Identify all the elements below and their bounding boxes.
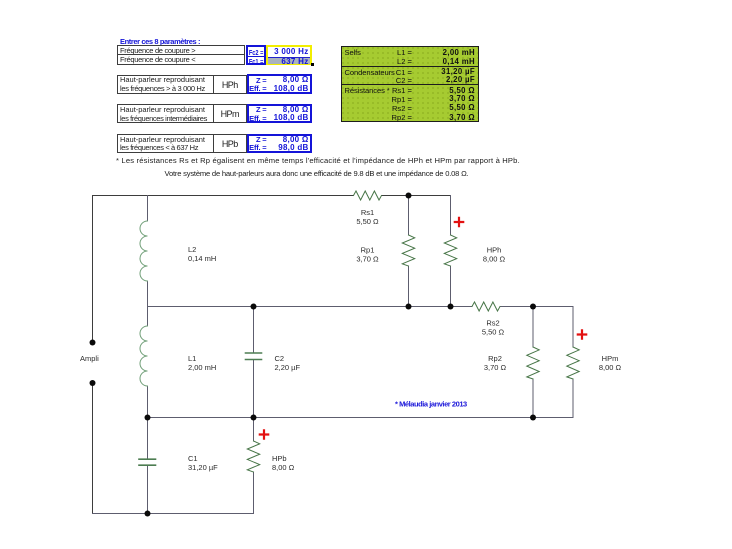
svg-text:Rp1: Rp1 bbox=[361, 246, 375, 255]
svg-text:8,00 Ω: 8,00 Ω bbox=[599, 363, 622, 372]
svg-text:8,00 Ω: 8,00 Ω bbox=[483, 255, 506, 264]
svg-text:HPb: HPb bbox=[272, 454, 287, 463]
svg-text:3,70 Ω: 3,70 Ω bbox=[484, 363, 507, 372]
svg-text:HPm: HPm bbox=[602, 354, 619, 363]
svg-text:* Mélaudia janvier 2013: * Mélaudia janvier 2013 bbox=[395, 400, 467, 409]
svg-text:L1: L1 bbox=[188, 354, 196, 363]
svg-text:2,20 µF: 2,20 µF bbox=[275, 363, 301, 372]
svg-text:5,50 Ω: 5,50 Ω bbox=[482, 328, 505, 337]
svg-text:Rp2: Rp2 bbox=[488, 354, 502, 363]
svg-text:C1: C1 bbox=[188, 454, 198, 463]
svg-text:Rs1: Rs1 bbox=[361, 208, 374, 217]
svg-text:3,70 Ω: 3,70 Ω bbox=[356, 255, 379, 264]
svg-text:HPh: HPh bbox=[487, 246, 502, 255]
svg-text:L2: L2 bbox=[188, 245, 196, 254]
svg-text:0,14 mH: 0,14 mH bbox=[188, 254, 216, 263]
svg-text:8,00 Ω: 8,00 Ω bbox=[272, 463, 295, 472]
svg-text:2,00 mH: 2,00 mH bbox=[188, 363, 216, 372]
svg-text:Rs2: Rs2 bbox=[486, 319, 499, 328]
svg-text:5,50 Ω: 5,50 Ω bbox=[356, 217, 379, 226]
svg-text:C2: C2 bbox=[275, 354, 285, 363]
svg-text:Ampli: Ampli bbox=[80, 354, 99, 363]
svg-text:31,20 µF: 31,20 µF bbox=[188, 463, 218, 472]
